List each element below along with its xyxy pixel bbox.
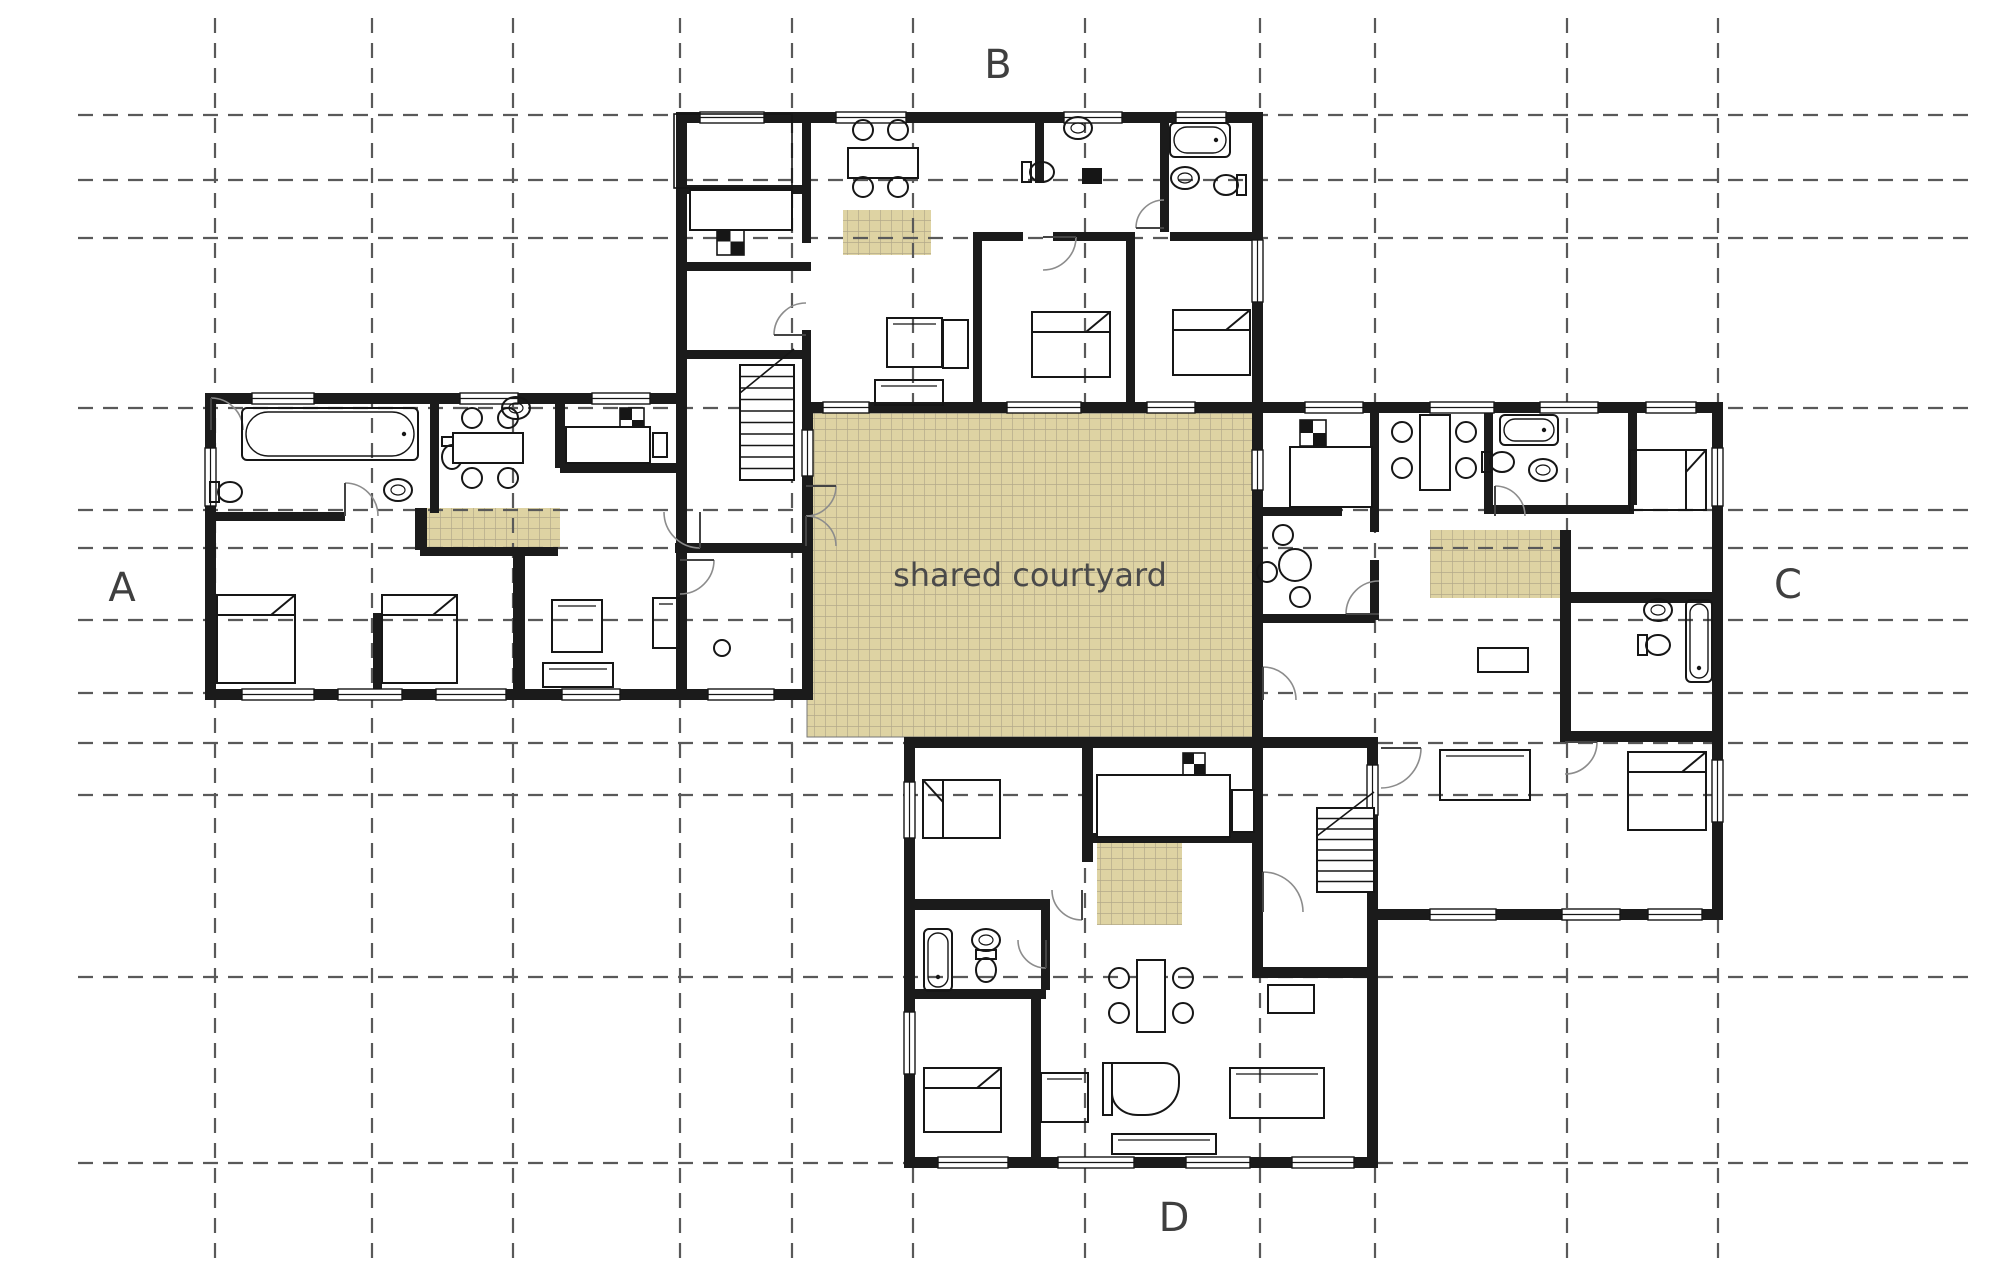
chair-icon: [462, 468, 482, 488]
stove-icon: [1300, 420, 1326, 446]
unit-label-D: D: [1159, 1195, 1190, 1241]
chair-icon: [1456, 458, 1476, 478]
wall: [1170, 232, 1252, 241]
shared-courtyard: shared courtyard: [807, 413, 1253, 737]
wall: [513, 548, 525, 689]
bed-icon: [1032, 312, 1110, 377]
chair-icon: [1109, 1003, 1129, 1023]
table: [848, 148, 918, 178]
wall: [205, 393, 216, 700]
sink-icon: [1529, 459, 1557, 481]
bed-icon: [1630, 450, 1706, 510]
sofa-icon: [653, 598, 679, 648]
kitchen-counter: [653, 433, 667, 457]
wall: [1370, 560, 1379, 620]
table: [453, 433, 523, 463]
door-swing-arc: [1565, 742, 1597, 774]
sofa-icon: [1230, 1068, 1324, 1118]
wall: [211, 512, 345, 521]
sofa-icon: [552, 600, 602, 652]
door-swing-arc: [774, 303, 806, 335]
entry-porch: [674, 114, 792, 188]
bathtub-icon: [1500, 415, 1558, 445]
sofa-icon: [1440, 750, 1530, 800]
floor-plan: shared courtyardABCD: [0, 0, 2000, 1284]
bathtub-icon: [1170, 123, 1230, 157]
wall: [973, 232, 982, 413]
wall: [373, 613, 382, 690]
kitchen-counter: [1097, 775, 1230, 837]
chair-icon: [1173, 1003, 1193, 1023]
wall: [904, 899, 1046, 910]
wall: [1252, 614, 1375, 623]
wall: [802, 123, 811, 243]
sink-icon: [1171, 167, 1199, 189]
door-swing-arc: [1043, 237, 1076, 270]
sink-icon: [972, 929, 1000, 951]
wall: [1126, 232, 1135, 413]
wall: [802, 330, 811, 413]
fixture: [1082, 168, 1102, 184]
kitchen-counter: [1232, 790, 1254, 832]
sofa-icon: [1112, 1134, 1216, 1154]
bathtub-icon: [1686, 600, 1712, 682]
unit-label-A: A: [108, 565, 136, 611]
terrace-patch: [1430, 530, 1560, 598]
bed-icon: [217, 595, 295, 683]
wall: [973, 232, 1023, 241]
sofa-icon: [543, 663, 613, 687]
wall: [1560, 592, 1571, 742]
stove-icon: [717, 228, 744, 255]
wall: [1252, 967, 1378, 978]
terrace-patch: [1097, 842, 1182, 925]
wall: [1082, 742, 1093, 862]
chair-icon: [1273, 525, 1293, 545]
bed-icon: [382, 595, 457, 683]
chair-icon: [1290, 587, 1310, 607]
bed-icon: [1628, 752, 1706, 830]
door-swing-arc: [1052, 890, 1082, 920]
wall: [555, 393, 565, 468]
terrace-patch: [420, 508, 560, 548]
wall: [1484, 505, 1634, 514]
table: [1420, 415, 1450, 490]
toilet-icon: [1214, 175, 1246, 195]
courtyard-label: shared courtyard: [893, 556, 1167, 594]
bed-icon: [1173, 310, 1250, 375]
wall: [560, 463, 676, 473]
fixture-circle: [714, 640, 730, 656]
chair-icon: [1456, 422, 1476, 442]
sink-icon: [384, 479, 412, 501]
wall: [1560, 731, 1712, 742]
wall: [1160, 123, 1169, 232]
wall: [676, 262, 811, 271]
bed-icon: [924, 1068, 1001, 1132]
wall: [904, 737, 1378, 748]
bed-icon: [923, 780, 1000, 838]
round-table: [1279, 549, 1311, 581]
floor-plan-canvas: shared courtyardABCD: [0, 0, 2000, 1284]
kitchen-counter: [690, 190, 792, 230]
wall: [1252, 507, 1342, 516]
table: [943, 320, 968, 368]
door-swing-arc: [1136, 200, 1164, 228]
stove-icon: [1183, 753, 1205, 775]
table: [1478, 648, 1528, 672]
sofa-icon: [875, 380, 943, 405]
grand-piano-icon: [1103, 1063, 1179, 1115]
wall: [1560, 530, 1571, 602]
chair-icon: [1392, 458, 1412, 478]
door-swing-arc: [1381, 748, 1421, 788]
bathtub-icon: [924, 929, 952, 991]
wall: [1252, 737, 1263, 967]
chair-icon: [462, 408, 482, 428]
unit-label-B: B: [984, 42, 1011, 88]
kitchen-counter: [1290, 447, 1372, 507]
wall: [1031, 989, 1041, 1168]
chair-icon: [888, 177, 908, 197]
wall: [420, 547, 558, 556]
unit-label-C: C: [1774, 562, 1802, 608]
wall: [676, 112, 687, 700]
kitchen-counter: [566, 427, 650, 463]
table: [1268, 985, 1314, 1013]
chair-icon: [498, 468, 518, 488]
table: [1137, 960, 1165, 1032]
wall: [1560, 592, 1712, 603]
door-swing-arc: [1263, 872, 1303, 912]
wall: [1035, 123, 1044, 183]
terrace-patch: [843, 210, 931, 255]
wall: [430, 393, 439, 513]
bathtub-icon: [242, 408, 418, 460]
wall: [415, 508, 427, 550]
sofa-icon: [887, 318, 942, 367]
chair-icon: [1392, 422, 1412, 442]
door-swing-arc: [1263, 667, 1296, 700]
toilet-icon: [1638, 635, 1670, 655]
sofa-icon: [1041, 1073, 1088, 1122]
